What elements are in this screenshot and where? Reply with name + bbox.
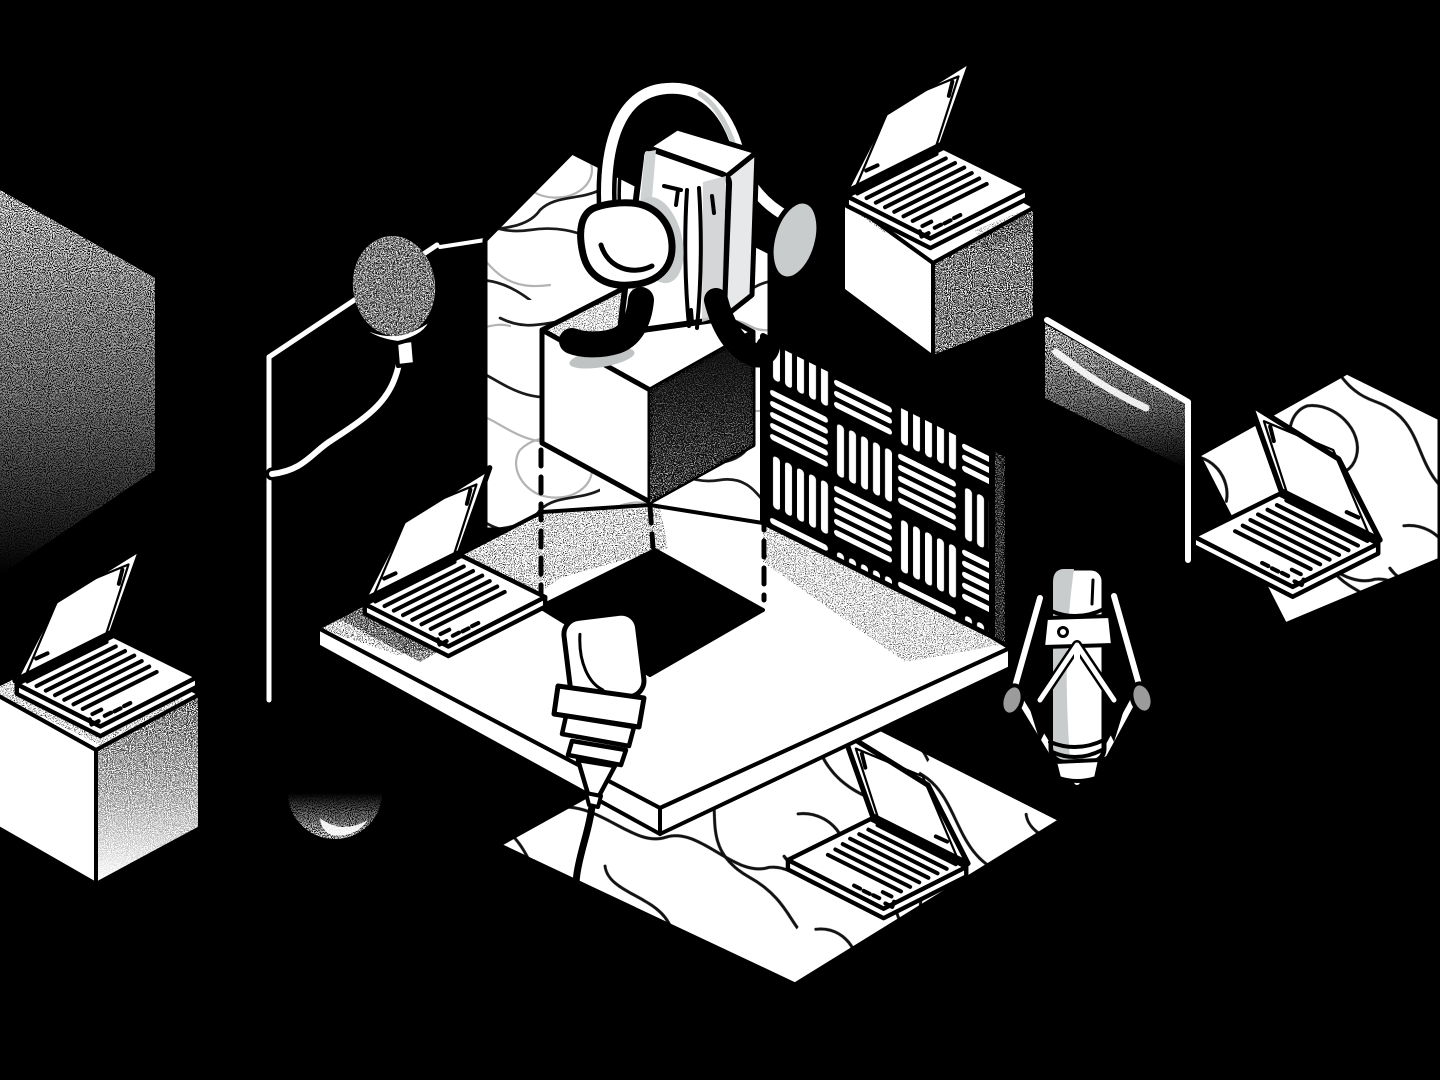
ear-cup-left (581, 203, 672, 285)
illustration-canvas (0, 0, 1440, 1080)
collar-screw (1059, 628, 1068, 637)
studio-illustration (0, 0, 1440, 1080)
mic-base-rings (1055, 760, 1100, 781)
